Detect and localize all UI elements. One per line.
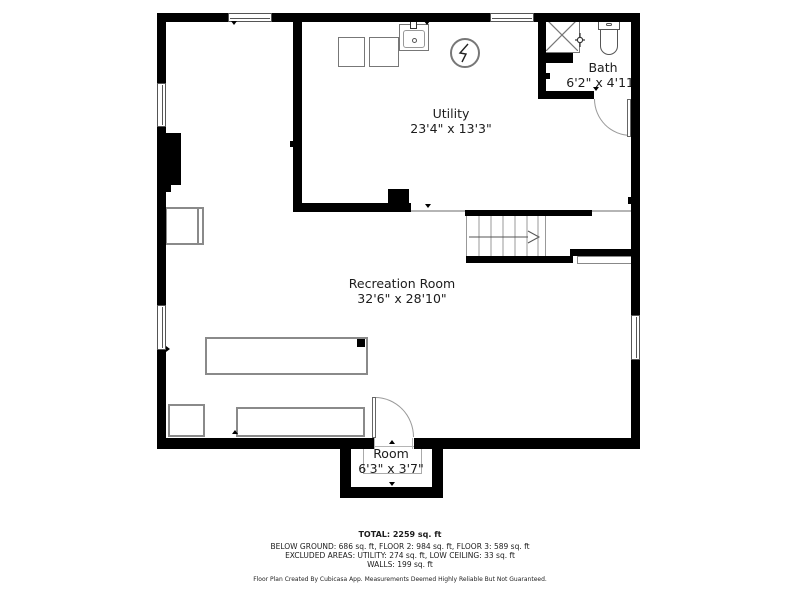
label-recreation-room: Recreation Room 32'6" x 28'10" bbox=[302, 276, 502, 306]
wall-utility-left bbox=[293, 22, 302, 211]
toilet-bowl bbox=[600, 29, 618, 55]
measure-marker bbox=[425, 204, 431, 208]
washer bbox=[338, 37, 365, 67]
bath-door-arc bbox=[594, 99, 631, 136]
summary-excluded: EXCLUDED AREAS: UTILITY: 274 sq. ft, LOW… bbox=[0, 551, 800, 560]
wall-bath-left bbox=[538, 22, 546, 99]
summary-total: TOTAL: 2259 sq. ft bbox=[0, 530, 800, 539]
room-dimensions: 6'3" x 3'7" bbox=[341, 461, 441, 476]
room-dimensions: 32'6" x 28'10" bbox=[302, 291, 502, 306]
smallroom-door-leaf bbox=[372, 397, 376, 438]
wall-smallroom-bottom bbox=[340, 487, 443, 498]
smallroom-door-arc bbox=[375, 397, 414, 437]
sink-drain bbox=[412, 38, 417, 43]
wall-stairs-top bbox=[465, 210, 592, 216]
open-boundary-line bbox=[411, 210, 465, 212]
sofa bbox=[236, 407, 365, 437]
summary-areas: BELOW GROUND: 686 sq. ft, FLOOR 2: 984 s… bbox=[0, 542, 800, 551]
door-jamb bbox=[412, 438, 413, 449]
wall-understair-closet bbox=[570, 249, 631, 256]
window-left-2 bbox=[157, 305, 166, 350]
threshold-line bbox=[374, 446, 414, 447]
wall-shower-bottom bbox=[546, 53, 573, 63]
desk-edge bbox=[197, 209, 199, 243]
wall-bath-bottom bbox=[538, 91, 594, 99]
dryer bbox=[369, 37, 399, 67]
window-right-1 bbox=[631, 315, 640, 360]
floor-plan: Utility 23'4" x 13'3" Bath 6'2" x 4'11" … bbox=[0, 0, 800, 600]
measure-marker bbox=[389, 440, 395, 444]
wall-utility-bottom bbox=[293, 203, 411, 212]
measure-marker bbox=[231, 21, 237, 25]
label-utility: Utility 23'4" x 13'3" bbox=[381, 106, 521, 136]
toilet-button bbox=[606, 23, 612, 26]
water-heater bbox=[450, 38, 480, 68]
understair-closet-door bbox=[577, 256, 633, 264]
room-dimensions: 23'4" x 13'3" bbox=[381, 121, 521, 136]
measure-marker bbox=[546, 73, 550, 79]
stair-direction-arrow bbox=[528, 231, 539, 243]
wall-stairs-bottom bbox=[466, 256, 573, 263]
open-boundary-line bbox=[592, 210, 631, 212]
measure-marker bbox=[290, 141, 294, 147]
stairs bbox=[466, 216, 546, 257]
water-heater-icon bbox=[452, 40, 478, 66]
door-jamb bbox=[374, 438, 375, 449]
side-table bbox=[168, 404, 205, 437]
wall-left bbox=[157, 13, 166, 449]
wall-right bbox=[631, 13, 640, 449]
summary-walls: WALLS: 199 sq. ft bbox=[0, 560, 800, 569]
wall-tick-right bbox=[628, 197, 634, 204]
measure-marker bbox=[344, 459, 348, 465]
window-left-1 bbox=[157, 83, 166, 127]
long-table bbox=[205, 337, 368, 375]
measure-marker bbox=[424, 21, 430, 25]
measure-marker bbox=[166, 346, 170, 352]
room-name: Utility bbox=[381, 106, 521, 121]
window-top-2 bbox=[490, 13, 534, 22]
measure-marker bbox=[434, 459, 438, 465]
summary-disclaimer: Floor Plan Created By Cubicasa App. Meas… bbox=[0, 576, 800, 583]
room-name: Recreation Room bbox=[302, 276, 502, 291]
area-summary: TOTAL: 2259 sq. ft BELOW GROUND: 686 sq.… bbox=[0, 530, 800, 583]
measure-marker bbox=[232, 430, 238, 434]
label-small-room: Room 6'3" x 3'7" bbox=[341, 446, 441, 476]
table-corner-block bbox=[357, 339, 365, 347]
measure-marker bbox=[389, 482, 395, 486]
measure-marker bbox=[593, 87, 599, 91]
shower-valve-icon bbox=[574, 32, 586, 48]
